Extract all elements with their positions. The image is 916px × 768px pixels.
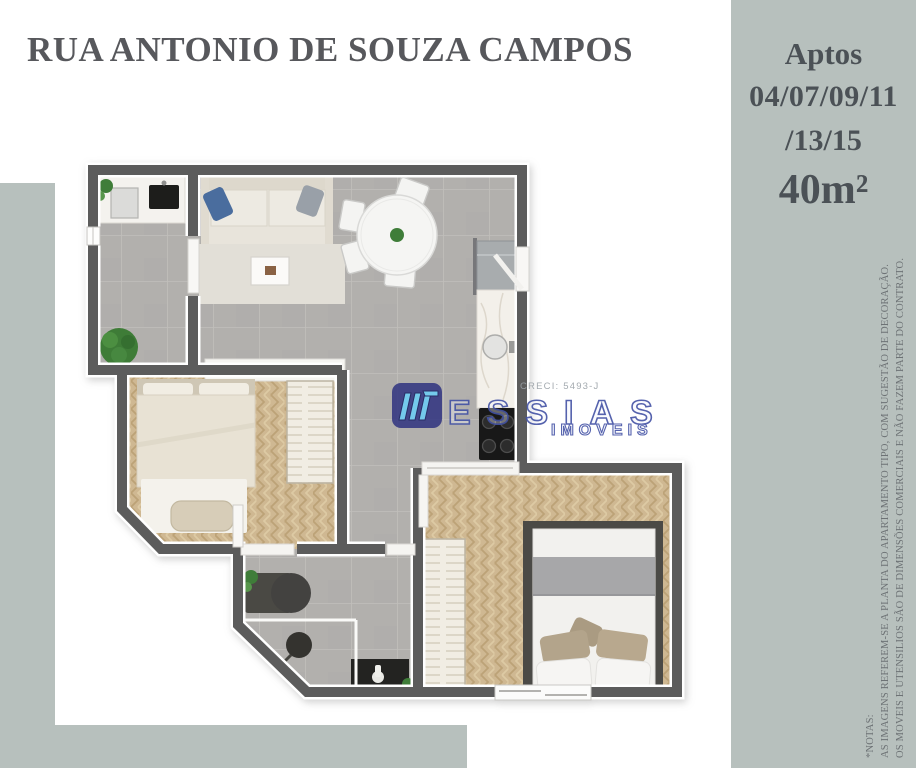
kitchen-sink xyxy=(483,335,507,359)
bed1-pillow-left xyxy=(143,383,193,396)
washing-machine xyxy=(111,188,138,218)
apartment-numbers-1: 04/07/09/11 xyxy=(731,80,916,114)
fridge-side-panel xyxy=(473,238,477,295)
sink-faucet xyxy=(375,665,381,677)
page: RUA ANTONIO DE SOUZA CAMPOS Aptos 04/07/… xyxy=(0,0,916,768)
table-centerpiece-plant xyxy=(390,228,404,242)
bedroom1-door-leaf xyxy=(233,505,243,547)
bedroom-2 xyxy=(421,521,663,693)
service-door-opening xyxy=(188,239,199,293)
stove xyxy=(479,408,517,460)
bed2-blanket xyxy=(533,557,655,595)
floor-plan xyxy=(75,143,687,723)
background-accent-bottom xyxy=(0,725,467,768)
fridge xyxy=(477,241,515,290)
street-address-title: RUA ANTONIO DE SOUZA CAMPOS xyxy=(27,30,707,70)
bathroom-door-threshold xyxy=(387,544,415,555)
apartment-area: 40m² xyxy=(731,166,916,214)
apartment-numbers-2: /13/15 xyxy=(731,124,916,158)
wardrobe-2 xyxy=(421,539,465,690)
kitchen-faucet xyxy=(509,341,515,353)
legal-notes: *NOTAS: AS IMAGENS REFEREM-SE A PLANTA D… xyxy=(863,246,908,758)
wardrobe-1 xyxy=(287,381,333,483)
apartments-label: Aptos xyxy=(731,36,916,72)
vanity-plant xyxy=(244,570,258,584)
bed1-bench xyxy=(171,501,233,531)
bedroom1-door-threshold xyxy=(241,544,294,555)
background-accent-left xyxy=(0,183,55,768)
bedroom2-door-leaf xyxy=(419,475,428,527)
vanity-basin xyxy=(271,573,311,613)
service-faucet xyxy=(162,181,167,186)
bush-plant xyxy=(100,328,138,366)
sofa-armrest-left xyxy=(201,176,209,244)
note-1: AS IMAGENS REFEREM-SE A PLANTA DO APARTA… xyxy=(878,246,893,758)
bed1-pillow-right xyxy=(199,383,249,396)
potted-plant xyxy=(99,179,113,193)
sofa-armrest-right xyxy=(325,176,333,244)
service-sink xyxy=(149,185,179,209)
notes-heading: *NOTAS: xyxy=(863,246,878,758)
table-decor xyxy=(265,266,276,275)
note-2: OS MOVEIS E UTENSILIOS SÃO DE DIMENSÕES … xyxy=(893,246,908,758)
sliding-door xyxy=(495,685,591,700)
